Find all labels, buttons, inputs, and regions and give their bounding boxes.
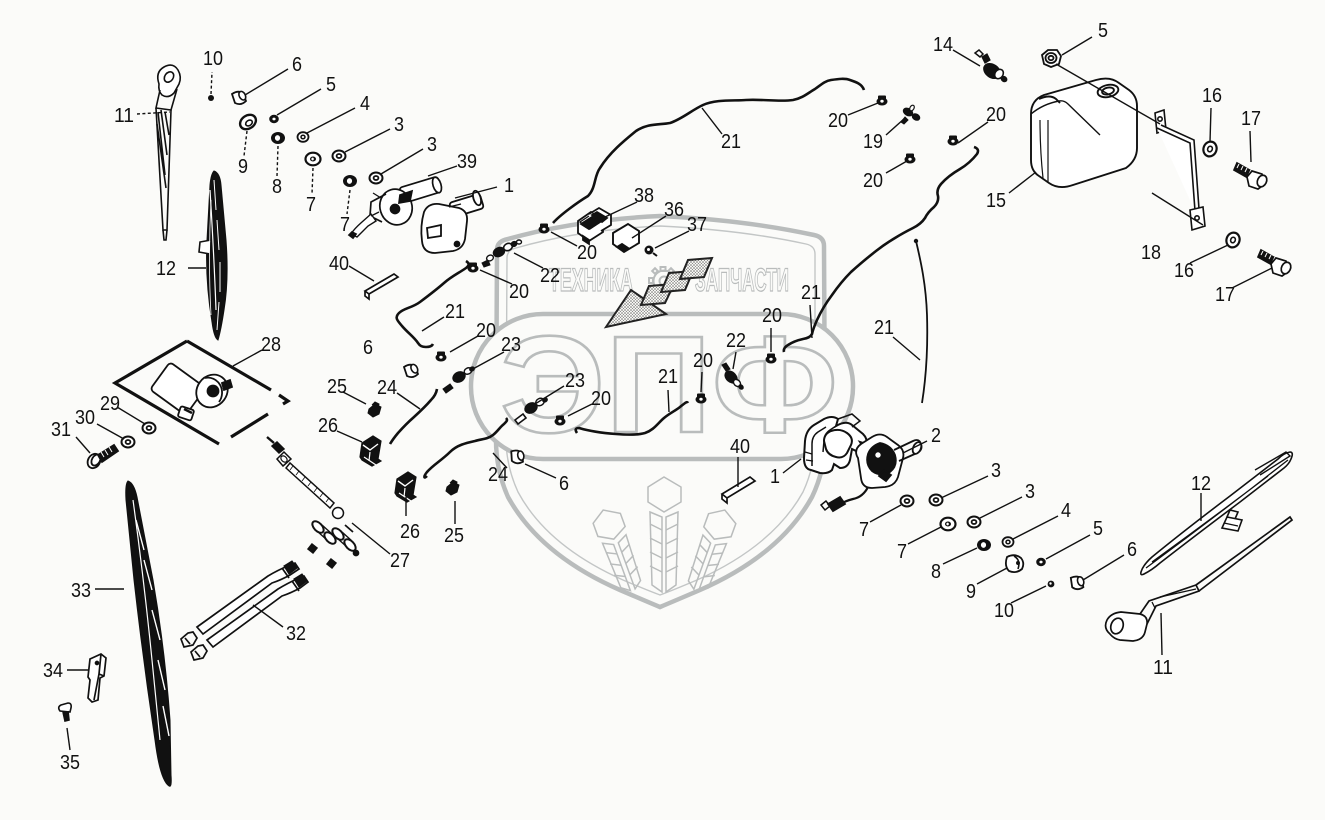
svg-text:23: 23 xyxy=(501,334,521,356)
svg-text:2: 2 xyxy=(931,425,941,447)
svg-text:5: 5 xyxy=(326,74,336,96)
svg-text:12: 12 xyxy=(1191,473,1211,495)
svg-text:12: 12 xyxy=(156,258,176,280)
svg-text:18: 18 xyxy=(1141,242,1161,264)
svg-text:20: 20 xyxy=(591,388,611,410)
svg-text:20: 20 xyxy=(476,320,496,342)
svg-text:9: 9 xyxy=(966,581,976,603)
svg-text:7: 7 xyxy=(897,541,907,563)
svg-text:39: 39 xyxy=(457,151,477,173)
svg-text:21: 21 xyxy=(445,301,465,323)
svg-text:3: 3 xyxy=(394,114,404,136)
svg-text:20: 20 xyxy=(693,350,713,372)
svg-text:20: 20 xyxy=(986,104,1006,126)
svg-text:17: 17 xyxy=(1241,108,1261,130)
svg-text:22: 22 xyxy=(726,330,746,352)
svg-text:21: 21 xyxy=(801,282,821,304)
svg-text:20: 20 xyxy=(577,242,597,264)
svg-text:1: 1 xyxy=(770,466,780,488)
svg-text:24: 24 xyxy=(377,377,397,399)
svg-text:35: 35 xyxy=(60,752,80,774)
svg-text:16: 16 xyxy=(1174,260,1194,282)
svg-text:25: 25 xyxy=(444,525,464,547)
svg-text:6: 6 xyxy=(1127,539,1137,561)
svg-text:10: 10 xyxy=(994,600,1014,622)
svg-text:8: 8 xyxy=(272,176,282,198)
svg-text:26: 26 xyxy=(318,415,338,437)
svg-text:21: 21 xyxy=(721,131,741,153)
svg-text:28: 28 xyxy=(261,334,281,356)
svg-text:5: 5 xyxy=(1098,20,1108,42)
svg-text:11: 11 xyxy=(114,105,134,127)
svg-text:29: 29 xyxy=(100,393,120,415)
svg-text:21: 21 xyxy=(658,366,678,388)
svg-text:4: 4 xyxy=(360,93,370,115)
svg-text:3: 3 xyxy=(991,460,1001,482)
svg-text:19: 19 xyxy=(863,131,883,153)
svg-text:20: 20 xyxy=(863,170,883,192)
svg-text:22: 22 xyxy=(540,265,560,287)
svg-text:38: 38 xyxy=(634,185,654,207)
svg-text:9: 9 xyxy=(238,156,248,178)
svg-text:37: 37 xyxy=(687,214,707,236)
svg-text:40: 40 xyxy=(329,253,349,275)
svg-text:10: 10 xyxy=(203,48,223,70)
svg-text:6: 6 xyxy=(363,337,373,359)
svg-text:7: 7 xyxy=(306,194,316,216)
svg-text:27: 27 xyxy=(390,550,410,572)
svg-text:34: 34 xyxy=(43,660,63,682)
svg-text:8: 8 xyxy=(931,561,941,583)
svg-text:40: 40 xyxy=(730,436,750,458)
svg-text:11: 11 xyxy=(1153,657,1173,679)
svg-text:17: 17 xyxy=(1215,284,1235,306)
svg-text:20: 20 xyxy=(509,281,529,303)
svg-text:7: 7 xyxy=(859,519,869,541)
svg-text:3: 3 xyxy=(427,134,437,156)
svg-text:33: 33 xyxy=(71,580,91,602)
svg-text:20: 20 xyxy=(828,110,848,132)
svg-text:30: 30 xyxy=(75,407,95,429)
svg-text:23: 23 xyxy=(565,370,585,392)
svg-text:1: 1 xyxy=(504,175,514,197)
svg-text:24: 24 xyxy=(488,464,508,486)
svg-text:31: 31 xyxy=(51,419,71,441)
svg-text:32: 32 xyxy=(286,623,306,645)
svg-text:7: 7 xyxy=(340,214,350,236)
svg-text:21: 21 xyxy=(874,317,894,339)
svg-text:14: 14 xyxy=(933,34,953,56)
svg-text:6: 6 xyxy=(559,473,569,495)
svg-text:16: 16 xyxy=(1202,85,1222,107)
svg-text:20: 20 xyxy=(762,305,782,327)
svg-text:5: 5 xyxy=(1093,518,1103,540)
svg-text:ТЕХНИКА: ТЕХНИКА xyxy=(549,262,633,298)
svg-text:4: 4 xyxy=(1061,500,1071,522)
svg-text:25: 25 xyxy=(327,376,347,398)
svg-text:15: 15 xyxy=(986,190,1006,212)
svg-text:6: 6 xyxy=(292,54,302,76)
svg-text:26: 26 xyxy=(400,521,420,543)
svg-text:36: 36 xyxy=(664,199,684,221)
svg-text:3: 3 xyxy=(1025,481,1035,503)
